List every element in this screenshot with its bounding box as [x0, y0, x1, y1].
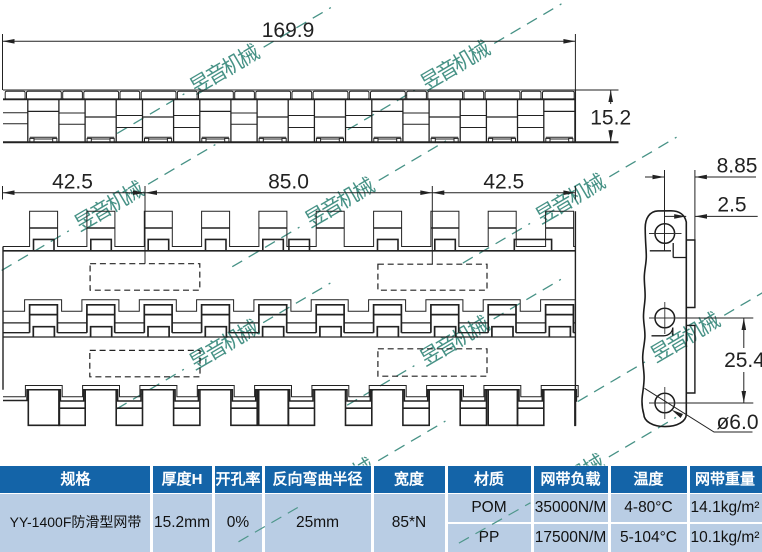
svg-text:42.5: 42.5	[52, 171, 93, 194]
svg-text:8.85: 8.85	[717, 155, 758, 178]
svg-text:ø6.0: ø6.0	[716, 411, 758, 434]
svg-text:2.5: 2.5	[717, 194, 746, 217]
svg-text:169.9: 169.9	[262, 19, 315, 42]
svg-text:15.2: 15.2	[590, 107, 631, 130]
svg-text:42.5: 42.5	[483, 171, 524, 194]
svg-text:85.0: 85.0	[268, 171, 309, 194]
svg-text:25.4: 25.4	[724, 349, 762, 372]
